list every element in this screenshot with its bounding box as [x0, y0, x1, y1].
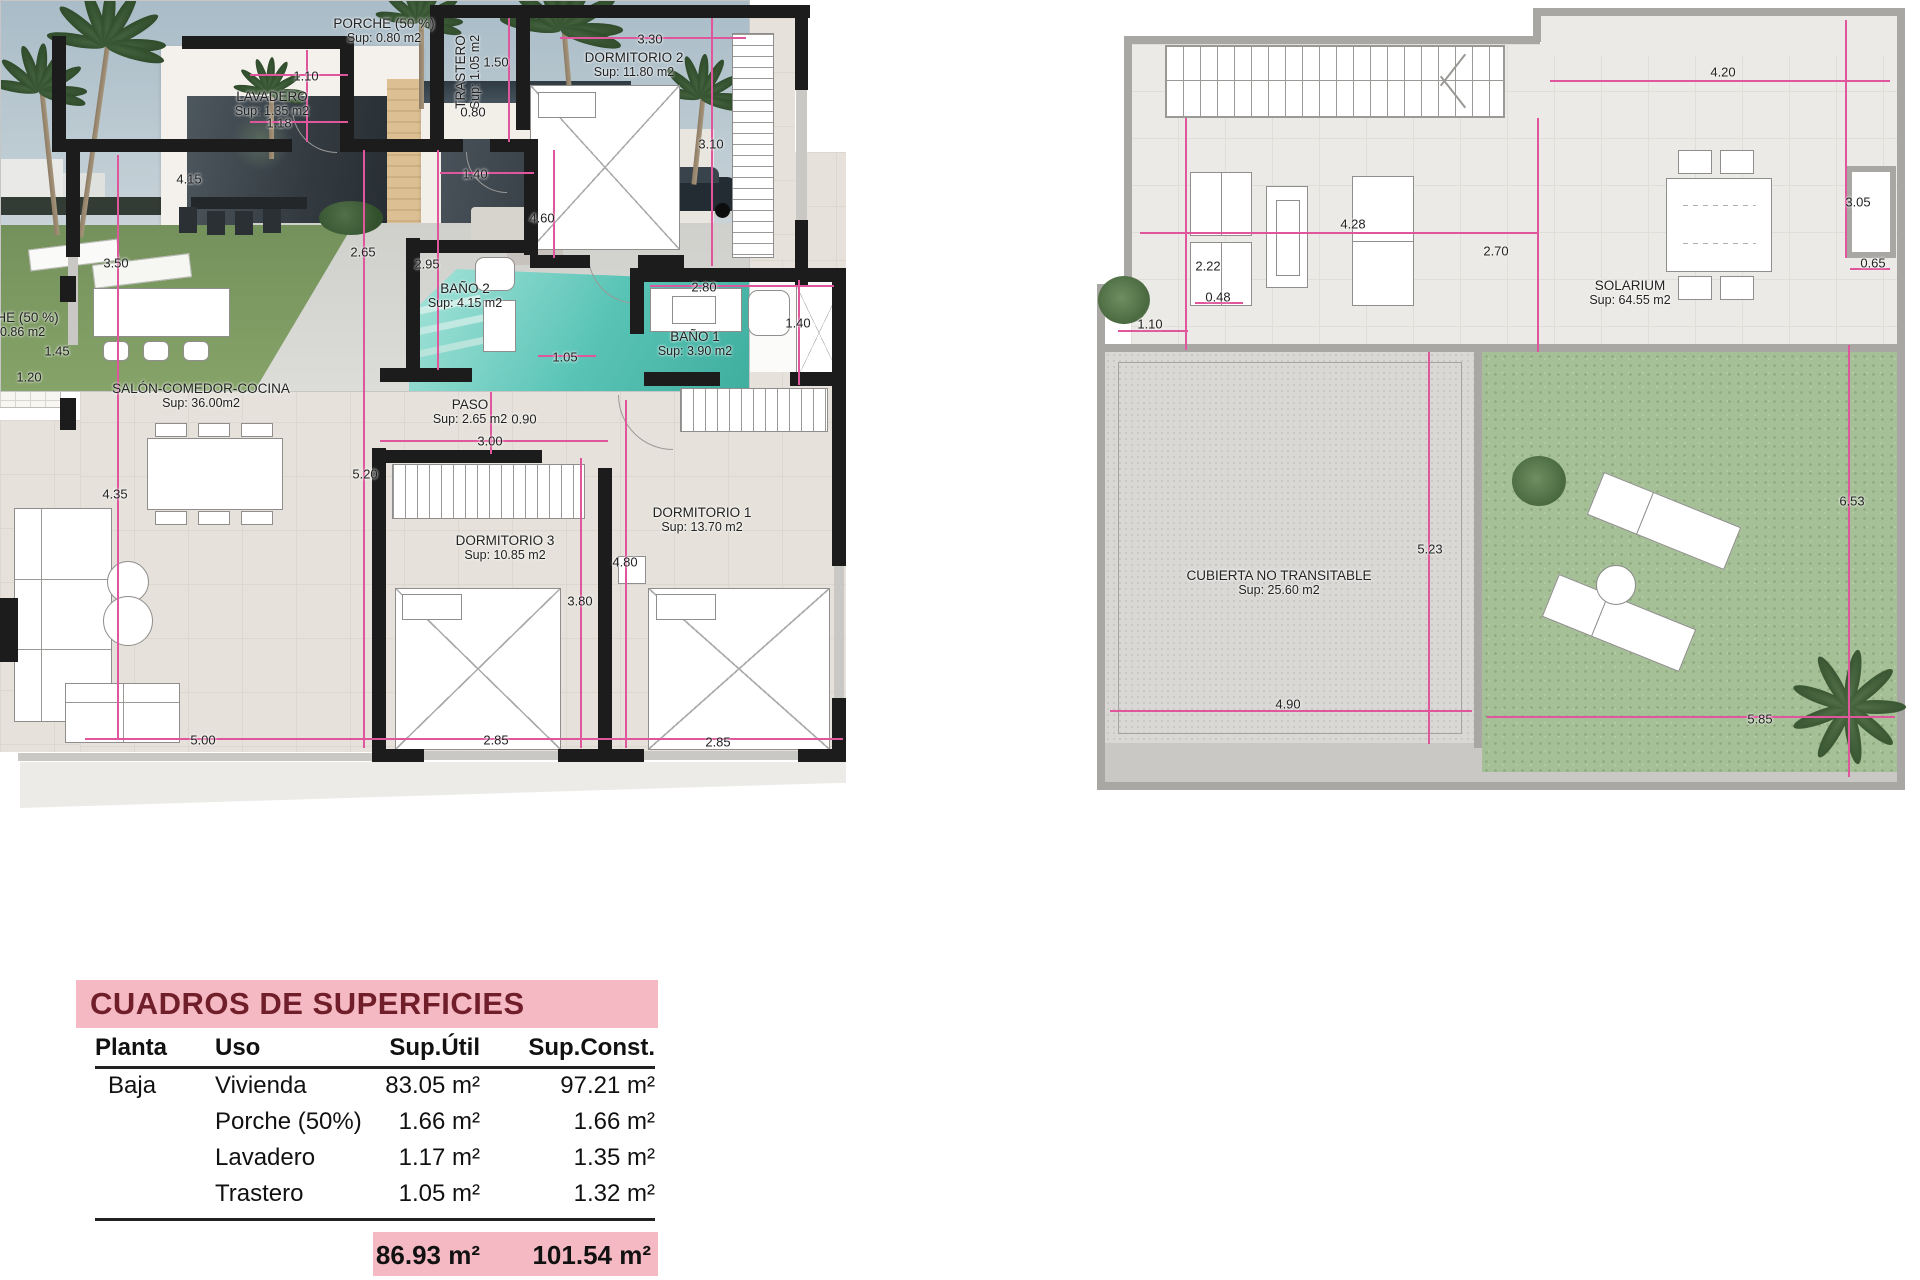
surface-table: CUADROS DE SUPERFICIES Planta Uso Sup.Út… — [0, 0, 1920, 1280]
table-title: CUADROS DE SUPERFICIES — [76, 980, 658, 1028]
total-const: 101.54 m² — [503, 1240, 651, 1271]
cell-uso: Vivienda — [215, 1072, 307, 1100]
table-rule — [95, 1218, 655, 1221]
cell-util: 1.17 m² — [360, 1144, 480, 1172]
col-header-planta: Planta — [95, 1034, 167, 1062]
cell-util: 1.66 m² — [360, 1108, 480, 1136]
plan-sheet: PORCHE (50 %)Sup: 0.80 m2LAVADEROSup: 1.… — [0, 0, 1920, 1280]
cell-const: 1.66 m² — [520, 1108, 655, 1136]
cell-const: 97.21 m² — [520, 1072, 655, 1100]
table-totals: 86.93 m² 101.54 m² — [373, 1232, 658, 1276]
table-rule — [95, 1066, 655, 1069]
col-header-uso: Uso — [215, 1034, 260, 1062]
cell-util: 1.05 m² — [360, 1180, 480, 1208]
col-header-supconst: Sup.Const. — [520, 1034, 655, 1062]
cell-planta: Baja — [108, 1072, 156, 1100]
total-util: 86.93 m² — [373, 1240, 480, 1271]
cell-uso: Lavadero — [215, 1144, 315, 1172]
cell-uso: Trastero — [215, 1180, 303, 1208]
cell-uso: Porche (50%) — [215, 1108, 362, 1136]
cell-const: 1.32 m² — [520, 1180, 655, 1208]
col-header-suputil: Sup.Útil — [360, 1034, 480, 1062]
cell-const: 1.35 m² — [520, 1144, 655, 1172]
cell-util: 83.05 m² — [360, 1072, 480, 1100]
